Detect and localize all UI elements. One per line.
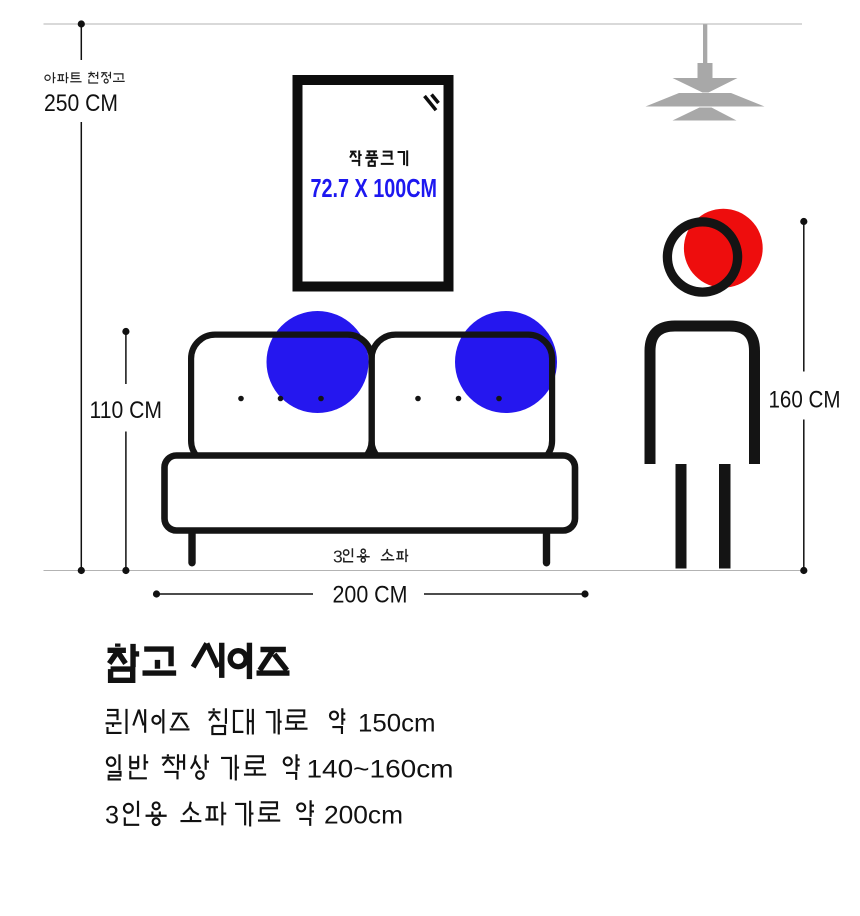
svg-text:140~160cm: 140~160cm [307, 756, 454, 784]
svg-text:110 CM: 110 CM [90, 397, 163, 424]
svg-text:200cm: 200cm [324, 802, 403, 830]
svg-text:150cm: 150cm [358, 710, 436, 738]
svg-text:3: 3 [333, 547, 343, 567]
svg-text:200 CM: 200 CM [333, 582, 408, 609]
svg-text:250 CM: 250 CM [44, 90, 118, 117]
svg-text:72.7 X 100CM: 72.7 X 100CM [311, 173, 438, 203]
svg-text:3: 3 [105, 802, 119, 830]
svg-text:160 CM: 160 CM [769, 387, 841, 414]
